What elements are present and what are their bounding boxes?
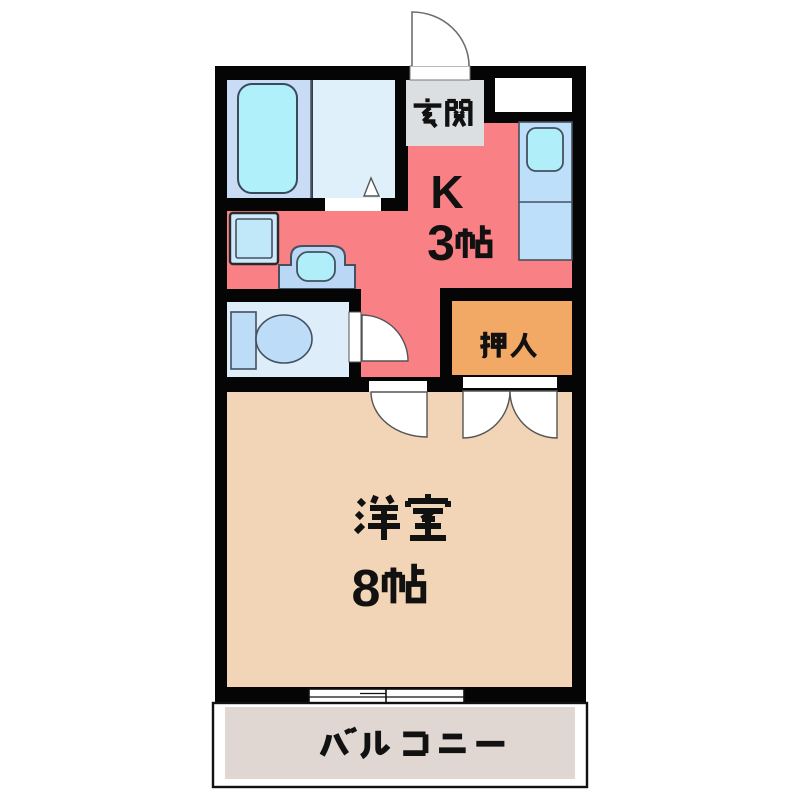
svg-text:3: 3: [427, 215, 455, 271]
svg-text:K: K: [430, 166, 463, 218]
svg-text:8: 8: [352, 560, 381, 618]
